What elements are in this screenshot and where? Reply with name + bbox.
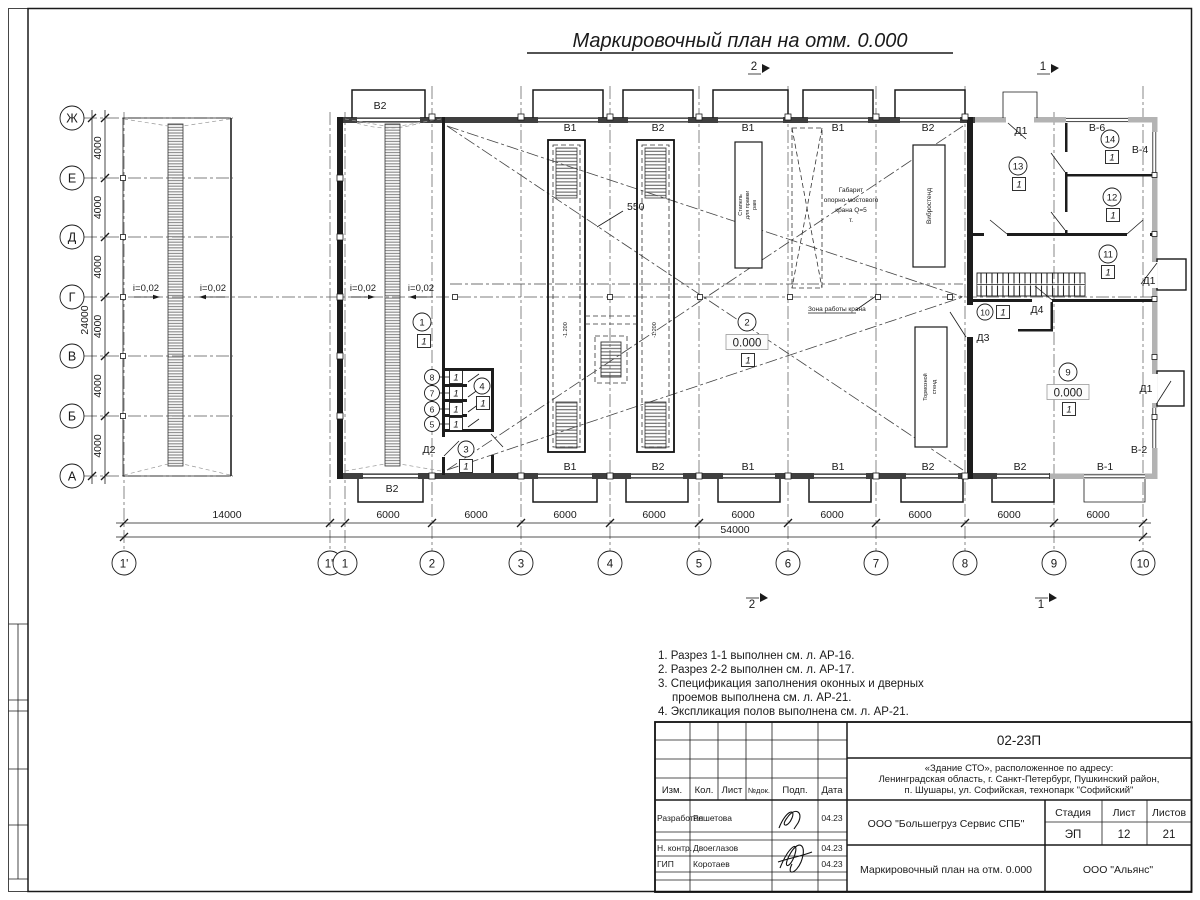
door-label-d4: Д4 <box>1031 304 1044 316</box>
svg-text:04.23: 04.23 <box>821 859 843 869</box>
pit-depth-label: -1.200 <box>563 322 569 338</box>
title-block: 02-23П «Здание СТО», расположенное по ад… <box>655 722 1192 892</box>
ramp-structure: i=0,02 i=0,02 <box>121 118 232 476</box>
svg-text:4000: 4000 <box>92 315 104 339</box>
signature-1 <box>779 811 800 829</box>
drawing-name: Маркировочный план на отм. 0.000 <box>860 864 1032 876</box>
svg-text:опорно-мостового: опорно-мостового <box>824 197 879 204</box>
svg-text:4000: 4000 <box>92 196 104 220</box>
svg-text:В2: В2 <box>652 461 665 473</box>
equipment-crane-gabarit: Габарит опорно-мостового крана Q=5 т. <box>792 128 879 288</box>
svg-text:8: 8 <box>962 559 968 571</box>
svg-text:Решетова: Решетова <box>693 813 732 823</box>
svg-text:6000: 6000 <box>731 509 755 521</box>
svg-text:проемов выполнена см. л. АР-21: проемов выполнена см. л. АР-21. <box>672 692 851 704</box>
axis-bubbles-cols: 1' 1" 1 2 3 4 5 6 7 8 9 10 <box>112 551 1155 575</box>
design-org: ООО "Альянс" <box>1083 864 1153 876</box>
svg-text:Листов: Листов <box>1152 807 1187 819</box>
svg-text:6000: 6000 <box>464 509 488 521</box>
door-gap-d1-top <box>1006 117 1034 123</box>
dim-54000: 54000 <box>720 524 749 536</box>
canopy-label: В2 <box>374 100 387 112</box>
svg-text:6000: 6000 <box>997 509 1021 521</box>
equipment-vibro: Вибростенд <box>913 145 945 267</box>
svg-text:В2: В2 <box>922 461 935 473</box>
window-gap-v1 <box>1084 474 1145 479</box>
svg-text:2: 2 <box>429 559 435 571</box>
gate-gap-bottom-2 <box>538 474 592 479</box>
svg-text:4000: 4000 <box>92 136 104 160</box>
svg-text:Лист: Лист <box>722 785 743 796</box>
window-label-v2: В-2 <box>1131 444 1148 456</box>
svg-text:14: 14 <box>1105 135 1116 146</box>
axis-bubbles-rows: Ж Е Д Г В Б А <box>60 106 84 488</box>
svg-text:Г: Г <box>69 291 76 305</box>
room-marker-10: 10 1 <box>977 304 1010 320</box>
svg-text:1: 1 <box>453 389 458 400</box>
svg-text:3. Спецификация заполнения око: 3. Спецификация заполнения оконных и две… <box>658 678 924 690</box>
svg-text:6: 6 <box>785 559 791 571</box>
gate-gap-bottom-1 <box>363 474 418 479</box>
svg-text:Тормозной: Тормозной <box>922 373 929 401</box>
svg-text:1. Разрез 1-1 выполнен см. л.: 1. Разрез 1-1 выполнен см. л. АР-16. <box>658 650 855 662</box>
doc-code: 02-23П <box>997 733 1041 748</box>
svg-text:1: 1 <box>342 559 348 571</box>
svg-text:В2: В2 <box>1014 461 1027 473</box>
sheets-total: 21 <box>1163 829 1176 841</box>
svg-text:Дата: Дата <box>821 785 843 796</box>
slope-label: i=0,02 <box>408 283 434 294</box>
room-marker-2: 2 0.000 1 <box>726 313 768 367</box>
svg-text:ГИП: ГИП <box>657 859 674 869</box>
svg-text:т.: т. <box>849 217 853 224</box>
svg-text:Кол.: Кол. <box>695 785 714 796</box>
svg-text:1: 1 <box>1000 308 1005 319</box>
frame-side-table <box>9 624 29 879</box>
dim-ticks-bottom <box>120 519 1147 541</box>
svg-text:5: 5 <box>696 559 702 571</box>
section-1-top: 1 <box>1040 61 1046 73</box>
svg-text:11: 11 <box>1103 250 1113 261</box>
room-marker-11: 11 1 <box>1099 245 1117 279</box>
svg-text:Б: Б <box>68 410 76 424</box>
signature-2 <box>778 845 812 872</box>
stage-value: ЭП <box>1065 829 1082 841</box>
drawing-sheet: Маркировочный план на отм. 0.000 i=0,02 … <box>0 0 1200 900</box>
room-marker-9: 9 0.000 1 <box>1047 363 1089 416</box>
svg-text:В1: В1 <box>832 461 845 473</box>
svg-text:8: 8 <box>430 373 435 383</box>
section-2-bottom: 2 <box>749 599 755 611</box>
svg-text:В-1: В-1 <box>1097 461 1114 473</box>
svg-text:Е: Е <box>68 172 76 186</box>
svg-text:1: 1 <box>463 462 468 473</box>
svg-text:крана Q=5: крана Q=5 <box>835 207 867 214</box>
object-address-1: «Здание СТО», расположенное по адресу: <box>925 763 1114 774</box>
gate-gap-bottom-4 <box>723 474 775 479</box>
contractor: ООО "Большегруз Сервис СПБ" <box>868 818 1025 830</box>
svg-text:В: В <box>68 350 76 364</box>
svg-text:5: 5 <box>430 420 435 430</box>
svg-text:В2: В2 <box>922 122 935 134</box>
svg-text:В1: В1 <box>564 122 577 134</box>
svg-text:4000: 4000 <box>92 255 104 279</box>
svg-text:1: 1 <box>1016 180 1021 191</box>
door-label-d3: Д3 <box>977 332 990 344</box>
svg-text:№док.: №док. <box>748 786 770 795</box>
page-title: Маркировочный план на отм. 0.000 <box>572 30 907 52</box>
svg-text:10: 10 <box>980 308 990 318</box>
svg-text:В1: В1 <box>742 461 755 473</box>
gate-gap-bottom-6 <box>906 474 958 479</box>
svg-text:6000: 6000 <box>908 509 932 521</box>
dim-24000: 24000 <box>79 305 91 334</box>
equipment-stapel: Стапель для правки рам <box>735 142 762 268</box>
svg-text:12: 12 <box>1107 193 1118 204</box>
svg-text:Изм.: Изм. <box>662 785 682 796</box>
svg-text:1: 1 <box>453 420 458 431</box>
equipment-brake: Тормозной стенд <box>915 327 947 447</box>
svg-text:4: 4 <box>607 559 614 571</box>
svg-text:В1: В1 <box>742 122 755 134</box>
svg-text:1: 1 <box>453 405 458 416</box>
svg-text:3: 3 <box>463 445 468 456</box>
svg-text:4. Экспликация полов выполнена: 4. Экспликация полов выполнена см. л. АР… <box>658 706 909 718</box>
svg-text:1: 1 <box>1066 405 1071 416</box>
dim-14000: 14000 <box>212 509 241 521</box>
svg-text:рам: рам <box>752 200 758 210</box>
svg-text:стенд: стенд <box>932 379 938 394</box>
svg-text:1: 1 <box>1110 211 1115 222</box>
elevation-label: 0.000 <box>1054 388 1083 400</box>
svg-text:Габарит: Габарит <box>839 186 863 194</box>
dimensions-bottom: 14000 6000 6000 6000 6000 6000 6000 6000… <box>116 509 1151 541</box>
elevation-label: 0.000 <box>733 338 762 350</box>
svg-text:6000: 6000 <box>553 509 577 521</box>
svg-text:04.23: 04.23 <box>821 813 843 823</box>
svg-text:6000: 6000 <box>1086 509 1110 521</box>
svg-text:Двоеглазов: Двоеглазов <box>693 843 739 853</box>
svg-text:6000: 6000 <box>376 509 400 521</box>
pit-depth-label: -1.200 <box>652 322 658 338</box>
inspection-pit-2: -1.200 <box>637 140 674 452</box>
svg-text:1: 1 <box>453 373 458 384</box>
svg-text:10: 10 <box>1137 559 1150 571</box>
inspection-pit-1: -1.200 <box>548 140 585 452</box>
object-address-2: Ленинградская область, г. Санкт-Петербур… <box>879 774 1160 785</box>
slope-label: i=0,02 <box>133 283 159 294</box>
svg-text:В2: В2 <box>652 122 665 134</box>
door-label-d1: Д1 <box>1140 383 1153 395</box>
notes: 1. Разрез 1-1 выполнен см. л. АР-16. 2. … <box>658 650 924 718</box>
drawing-title: Маркировочный план на отм. 0.000 <box>527 30 953 53</box>
room-marker-1: 1 1 <box>413 313 431 348</box>
room-marker-14: 14 1 <box>1101 130 1119 164</box>
slope-label: i=0,02 <box>350 283 376 294</box>
svg-text:4000: 4000 <box>92 434 104 458</box>
svg-text:В1: В1 <box>564 461 577 473</box>
gate-gap-bottom-3 <box>631 474 683 479</box>
svg-text:1: 1 <box>1105 268 1110 279</box>
room-marker-13: 13 1 <box>1009 157 1027 191</box>
svg-text:Стадия: Стадия <box>1055 807 1091 819</box>
section-2-top: 2 <box>751 61 757 73</box>
ramp-hatch-strip <box>168 124 183 466</box>
dim-550-label: 550 <box>627 201 645 213</box>
svg-text:13: 13 <box>1013 162 1024 173</box>
svg-text:9: 9 <box>1051 559 1057 571</box>
svg-text:6: 6 <box>430 405 435 415</box>
sheet-number: 12 <box>1118 829 1131 841</box>
svg-text:6000: 6000 <box>642 509 666 521</box>
svg-text:4000: 4000 <box>92 374 104 398</box>
gate-gap-bottom-7 <box>997 474 1049 479</box>
svg-text:Подп.: Подп. <box>782 785 807 796</box>
svg-text:Лист: Лист <box>1113 807 1136 819</box>
svg-text:1: 1 <box>745 356 750 367</box>
window-gap-v4 <box>1152 132 1158 172</box>
svg-text:Н. контр.: Н. контр. <box>657 843 692 853</box>
svg-text:А: А <box>68 470 77 484</box>
room-marker-12: 12 1 <box>1103 188 1121 222</box>
svg-text:2. Разрез 2-2 выполнен см. л.: 2. Разрез 2-2 выполнен см. л. АР-17. <box>658 664 855 676</box>
svg-text:Коротаев: Коротаев <box>693 859 730 869</box>
section-1-bottom: 1 <box>1038 599 1044 611</box>
sheet-frame <box>9 9 1192 892</box>
svg-text:9: 9 <box>1065 368 1070 379</box>
svg-text:1: 1 <box>419 318 424 329</box>
annex-stairs <box>977 273 1085 296</box>
svg-text:Стапель: Стапель <box>738 194 744 216</box>
object-address-3: п. Шушары, ул. Софийская, технопарк "Соф… <box>905 785 1134 796</box>
svg-text:6000: 6000 <box>820 509 844 521</box>
svg-text:7: 7 <box>430 389 435 399</box>
svg-text:1': 1' <box>120 559 129 571</box>
svg-text:3: 3 <box>518 559 524 571</box>
canopy-label: В2 <box>386 483 399 495</box>
section-marks: 2 2 1 1 <box>746 61 1059 611</box>
svg-text:1: 1 <box>421 337 426 348</box>
door-label-d1: Д1 <box>1015 125 1028 137</box>
window-label-v6: В-6 <box>1089 122 1106 134</box>
svg-text:для правки: для правки <box>745 191 751 219</box>
svg-text:7: 7 <box>873 559 879 571</box>
svg-text:4: 4 <box>479 382 484 393</box>
svg-text:Д: Д <box>68 231 77 245</box>
crane-zone-lines: Зона работы крана <box>447 126 963 470</box>
slope-label: i=0,02 <box>200 283 226 294</box>
room1-hatch-strip <box>385 124 400 466</box>
room-marker-4: 4 1 <box>474 378 490 410</box>
svg-text:Вибростенд: Вибростенд <box>925 188 933 224</box>
window-label-v4: В-4 <box>1132 144 1149 156</box>
svg-text:В1: В1 <box>832 122 845 134</box>
opening-labels: В2 В1 В2 В1 В1 В2 В1 В2 В1 В1 В2 В2 В-1 … <box>374 100 1156 495</box>
svg-text:1: 1 <box>1109 153 1114 164</box>
door-label-d2: Д2 <box>423 444 436 456</box>
vestibule-d1-low <box>1152 371 1184 406</box>
svg-text:1: 1 <box>480 399 485 410</box>
door-label-d1: Д1 <box>1143 275 1156 287</box>
svg-text:2: 2 <box>744 318 749 329</box>
svg-text:Ж: Ж <box>66 112 78 126</box>
gate-gap-bottom-5 <box>814 474 866 479</box>
window-gap-v2 <box>1152 408 1158 448</box>
svg-text:04.23: 04.23 <box>821 843 843 853</box>
room-marker-3: 3 1 <box>458 441 474 473</box>
